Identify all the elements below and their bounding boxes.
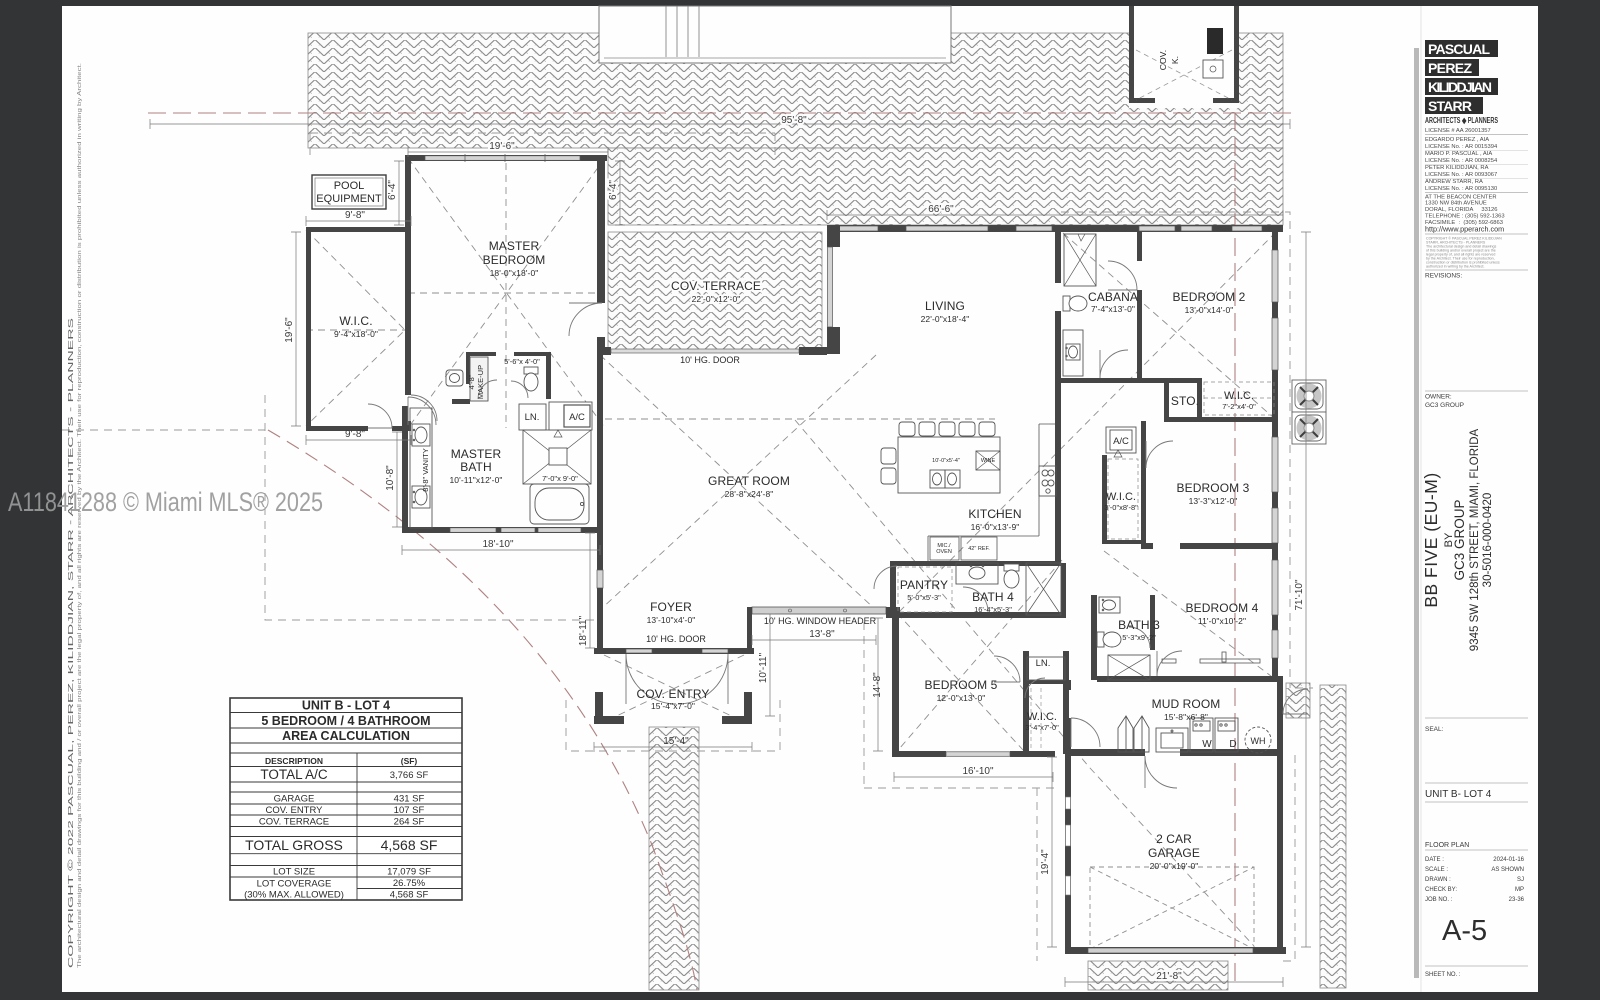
svg-text:OVEN: OVEN (936, 549, 952, 555)
svg-text:19'-4": 19'-4" (1040, 849, 1051, 875)
svg-text:MUD ROOM: MUD ROOM (1152, 697, 1221, 711)
svg-text:BEDROOM: BEDROOM (483, 253, 546, 267)
svg-text:15'-4"x7'-0": 15'-4"x7'-0" (651, 701, 695, 711)
svg-text:JOB NO. :: JOB NO. : (1425, 897, 1453, 903)
svg-text:15'-4": 15'-4" (663, 736, 689, 747)
svg-text:12'-0"x13'-0": 12'-0"x13'-0" (937, 693, 986, 703)
svg-text:PASCUAL: PASCUAL (1428, 41, 1490, 57)
svg-text:2024-01-16: 2024-01-16 (1493, 857, 1524, 863)
svg-text:PEREZ: PEREZ (1428, 60, 1472, 76)
svg-text:9345 SW 128th STREET, MIAMI, F: 9345 SW 128th STREET, MIAMI, FLORIDA (1469, 428, 1481, 651)
svg-text:10' HG. DOOR: 10' HG. DOOR (646, 634, 706, 644)
svg-text:17,079 SF: 17,079 SF (387, 867, 431, 878)
svg-text:A-5: A-5 (1442, 915, 1487, 947)
svg-text:GC3 GROUP: GC3 GROUP (1425, 402, 1464, 409)
svg-text:http://www.pperarch.com: http://www.pperarch.com (1425, 225, 1504, 234)
svg-text:COV.: COV. (1158, 50, 1168, 70)
svg-text:UNIT B - LOT 4: UNIT B - LOT 4 (302, 699, 390, 713)
svg-text:3'-4"x7'-0": 3'-4"x7'-0" (1025, 723, 1059, 732)
svg-text:28'-8"x24'-8": 28'-8"x24'-8" (725, 489, 774, 499)
svg-text:264 SF: 264 SF (394, 817, 425, 828)
svg-text:BEDROOM 2: BEDROOM 2 (1173, 290, 1246, 304)
svg-text:LICENSE No. : AR 0093067: LICENSE No. : AR 0093067 (1425, 172, 1497, 178)
svg-text:COV. ENTRY: COV. ENTRY (265, 805, 323, 816)
svg-text:KILIDDJIAN: KILIDDJIAN (1428, 79, 1492, 95)
svg-text:7'-4"x13'-0": 7'-4"x13'-0" (1091, 304, 1135, 314)
svg-text:AREA CALCULATION: AREA CALCULATION (282, 729, 410, 743)
svg-text:STO.: STO. (1171, 394, 1199, 408)
svg-text:ANDREW STARR, RA: ANDREW STARR, RA (1425, 179, 1483, 185)
svg-text:MARIO P. PASCUAL , AIA: MARIO P. PASCUAL , AIA (1425, 151, 1492, 157)
svg-text:SHEET NO. :: SHEET NO. : (1425, 972, 1461, 978)
svg-text:6'-4": 6'-4" (387, 180, 398, 200)
svg-text:FOYER: FOYER (650, 600, 692, 614)
svg-text:5'-6"x 4'-0": 5'-6"x 4'-0" (504, 357, 540, 366)
svg-text:2 CAR: 2 CAR (1156, 832, 1192, 846)
svg-text:10'-11": 10'-11" (758, 652, 769, 683)
svg-text:REVISIONS:: REVISIONS: (1425, 273, 1462, 280)
svg-text:6'-4": 6'-4" (608, 180, 619, 200)
svg-text:LN.: LN. (1036, 658, 1051, 669)
svg-text:WH: WH (1251, 736, 1266, 746)
svg-text:10'-8": 10'-8" (385, 465, 396, 491)
svg-text:26.75%: 26.75% (393, 878, 426, 889)
svg-text:LICENSE # AA 26001357: LICENSE # AA 26001357 (1425, 128, 1491, 134)
svg-text:13'-0"x14'-0": 13'-0"x14'-0" (1185, 305, 1234, 315)
svg-text:GREAT ROOM: GREAT ROOM (708, 474, 790, 488)
svg-text:9'-4"x18'-0": 9'-4"x18'-0" (334, 329, 378, 339)
svg-text:LOT COVERAGE: LOT COVERAGE (257, 879, 332, 890)
svg-text:LIVING: LIVING (925, 299, 965, 313)
svg-text:23-36: 23-36 (1509, 897, 1525, 903)
svg-text:AS SHOWN: AS SHOWN (1491, 867, 1524, 873)
svg-text:LICENSE No. : AR 0095130: LICENSE No. : AR 0095130 (1425, 186, 1497, 192)
svg-text:BEDROOM 3: BEDROOM 3 (1177, 481, 1250, 495)
svg-text:GC3 GROUP: GC3 GROUP (1452, 499, 1467, 580)
svg-text:BATH 3: BATH 3 (1118, 618, 1160, 632)
svg-text:OWNER:: OWNER: (1425, 394, 1452, 401)
svg-text:MP: MP (1515, 887, 1524, 893)
svg-text:11'-0"x10'-2": 11'-0"x10'-2" (1198, 616, 1246, 626)
svg-text:K.: K. (1170, 56, 1180, 64)
svg-text:DATE :: DATE : (1425, 857, 1444, 863)
svg-text:13'-3"x12'-0": 13'-3"x12'-0" (1189, 496, 1238, 506)
svg-text:4'-8": 4'-8" (467, 374, 476, 389)
svg-text:4,568 SF: 4,568 SF (381, 837, 438, 853)
svg-text:1330 NW 84th AVENUE: 1330 NW 84th AVENUE (1425, 201, 1487, 207)
svg-text:9'-8": 9'-8" (345, 429, 365, 440)
svg-text:18'-11": 18'-11" (578, 615, 589, 646)
svg-text:(30% MAX. ALLOWED): (30% MAX. ALLOWED) (244, 890, 344, 901)
svg-text:BATH: BATH (460, 460, 492, 474)
svg-text:A/C: A/C (569, 412, 585, 423)
svg-text:3'-0"x8'-8": 3'-0"x8'-8" (1104, 503, 1138, 512)
svg-text:WINE: WINE (981, 458, 996, 464)
svg-text:EDGARDO PEREZ , AIA: EDGARDO PEREZ , AIA (1425, 137, 1489, 143)
svg-text:13'-10"x4'-0": 13'-10"x4'-0" (647, 615, 696, 625)
svg-text:107 SF: 107 SF (394, 805, 425, 816)
svg-text:42" REF.: 42" REF. (968, 546, 990, 552)
svg-text:COV. TERRACE: COV. TERRACE (671, 279, 761, 293)
svg-text:TOTAL A/C: TOTAL A/C (260, 767, 328, 782)
svg-text:ARCHITECTS ◆ PLANNERS: ARCHITECTS ◆ PLANNERS (1425, 116, 1498, 125)
svg-text:8'-8" VANITY: 8'-8" VANITY (421, 448, 430, 492)
svg-text:13'-8": 13'-8" (809, 629, 835, 640)
svg-text:LICENSE No. : AR 0008254: LICENSE No. : AR 0008254 (1425, 158, 1498, 164)
svg-text:COV. ENTRY: COV. ENTRY (636, 687, 709, 701)
svg-text:PETER KILIDDJIAN, RA: PETER KILIDDJIAN, RA (1425, 165, 1489, 171)
svg-text:LICENSE No. : AR 0015394: LICENSE No. : AR 0015394 (1425, 144, 1498, 150)
svg-text:LN.: LN. (525, 412, 540, 423)
svg-text:18'-0"x18'-0": 18'-0"x18'-0" (490, 268, 539, 278)
svg-text:MASTER: MASTER (489, 239, 540, 253)
svg-text:BATH 4: BATH 4 (972, 590, 1014, 604)
svg-text:21'-8": 21'-8" (1156, 971, 1182, 982)
svg-text:COPYRIGHT © 2022 PASCUAL, PERE: COPYRIGHT © 2022 PASCUAL, PEREZ, KILIDDJ… (66, 318, 75, 968)
svg-text:W.I.C.: W.I.C. (1106, 491, 1136, 503)
svg-text:71'-10": 71'-10" (1294, 579, 1305, 610)
svg-text:19'-6": 19'-6" (489, 141, 515, 152)
svg-text:DESCRIPTION: DESCRIPTION (265, 756, 323, 766)
svg-text:TOTAL GROSS: TOTAL GROSS (245, 837, 343, 853)
svg-text:95'-8": 95'-8" (781, 115, 807, 126)
svg-text:authorized in writing by the A: authorized in writing by the Architect. (1426, 265, 1485, 269)
svg-text:DORAL, FLORIDA 33126: DORAL, FLORIDA 33126 (1425, 207, 1498, 213)
svg-text:CHECK BY:: CHECK BY: (1425, 887, 1457, 893)
svg-text:TELEPHONE : (305) 592-1363: TELEPHONE : (305) 592-1363 (1425, 214, 1505, 220)
svg-text:MAKE-UP: MAKE-UP (476, 365, 485, 399)
svg-text:7'-2"x4'-0": 7'-2"x4'-0" (1222, 402, 1256, 411)
svg-text:PANTRY: PANTRY (900, 578, 948, 592)
svg-text:10'-11"x12'-0": 10'-11"x12'-0" (449, 475, 502, 485)
svg-text:16'-10": 16'-10" (962, 766, 993, 777)
svg-text:10' HG. WINDOW HEADER: 10' HG. WINDOW HEADER (764, 616, 877, 626)
svg-text:22'-0"x12'-0": 22'-0"x12'-0" (692, 294, 741, 304)
svg-text:A/C: A/C (1113, 436, 1129, 447)
svg-text:POOL: POOL (334, 180, 365, 192)
svg-text:FLOOR PLAN: FLOOR PLAN (1425, 842, 1469, 849)
svg-text:SCALE :: SCALE : (1425, 867, 1448, 873)
svg-text:W.I.C.: W.I.C. (1027, 711, 1057, 723)
svg-text:GARAGE: GARAGE (1148, 846, 1200, 860)
svg-text:22'-0"x18'-4": 22'-0"x18'-4" (921, 314, 970, 324)
svg-text:5 BEDROOM / 4 BATHROOM: 5 BEDROOM / 4 BATHROOM (261, 714, 430, 728)
svg-text:A11841288 © Miami MLS® 2025: A11841288 © Miami MLS® 2025 (8, 487, 323, 517)
svg-text:431 SF: 431 SF (394, 794, 425, 805)
svg-text:(SF): (SF) (401, 756, 418, 766)
svg-text:SJ: SJ (1517, 877, 1524, 883)
svg-text:5'-3"x9'-2": 5'-3"x9'-2" (1122, 633, 1156, 642)
svg-text:D: D (1229, 739, 1236, 750)
svg-text:10'-0"x5'-4": 10'-0"x5'-4" (932, 458, 960, 464)
svg-text:4,568 SF: 4,568 SF (390, 890, 429, 901)
svg-text:BB FIVE (EU-M): BB FIVE (EU-M) (1421, 472, 1441, 607)
svg-text:16'-0"x13'-9": 16'-0"x13'-9" (971, 522, 1020, 532)
svg-text:15'-8"x6'-8": 15'-8"x6'-8" (1164, 712, 1208, 722)
svg-text:BEDROOM 4: BEDROOM 4 (1186, 601, 1259, 615)
svg-text:MASTER: MASTER (451, 447, 502, 461)
svg-text:14'-8": 14'-8" (872, 672, 883, 698)
svg-text:5'-0"x5'-3": 5'-0"x5'-3" (907, 593, 941, 602)
svg-text:9'-8": 9'-8" (345, 210, 365, 221)
svg-text:W.I.C.: W.I.C. (339, 314, 372, 328)
svg-text:COV. TERRACE: COV. TERRACE (259, 817, 329, 828)
svg-text:GARAGE: GARAGE (274, 794, 315, 805)
svg-text:UNIT B- LOT 4: UNIT B- LOT 4 (1425, 789, 1492, 800)
svg-text:LOT SIZE: LOT SIZE (273, 867, 315, 878)
svg-text:DRAWN :: DRAWN : (1425, 877, 1451, 883)
svg-text:20'-0"x19'-0": 20'-0"x19'-0" (1150, 861, 1199, 871)
svg-text:66'-6": 66'-6" (928, 204, 954, 215)
svg-text:BEDROOM 5: BEDROOM 5 (925, 678, 998, 692)
svg-text:19'-6": 19'-6" (284, 317, 295, 343)
svg-text:KITCHEN: KITCHEN (968, 507, 1021, 521)
svg-text:W: W (1202, 739, 1212, 750)
svg-text:3,766 SF: 3,766 SF (390, 770, 429, 781)
svg-text:30-5016-000-0420: 30-5016-000-0420 (1482, 493, 1494, 588)
svg-text:7'-0"x 9'-0": 7'-0"x 9'-0" (542, 474, 578, 483)
svg-text:SEAL:: SEAL: (1425, 726, 1444, 733)
svg-text:18'-10": 18'-10" (482, 539, 513, 550)
svg-text:STARR: STARR (1428, 98, 1472, 114)
svg-text:EQUIPMENT: EQUIPMENT (316, 193, 382, 205)
svg-text:W.I.C.: W.I.C. (1224, 390, 1254, 402)
svg-text:16'-4"x5'-3": 16'-4"x5'-3" (974, 605, 1012, 614)
svg-text:10' HG. DOOR: 10' HG. DOOR (680, 355, 740, 365)
svg-text:CABANA: CABANA (1088, 290, 1138, 304)
